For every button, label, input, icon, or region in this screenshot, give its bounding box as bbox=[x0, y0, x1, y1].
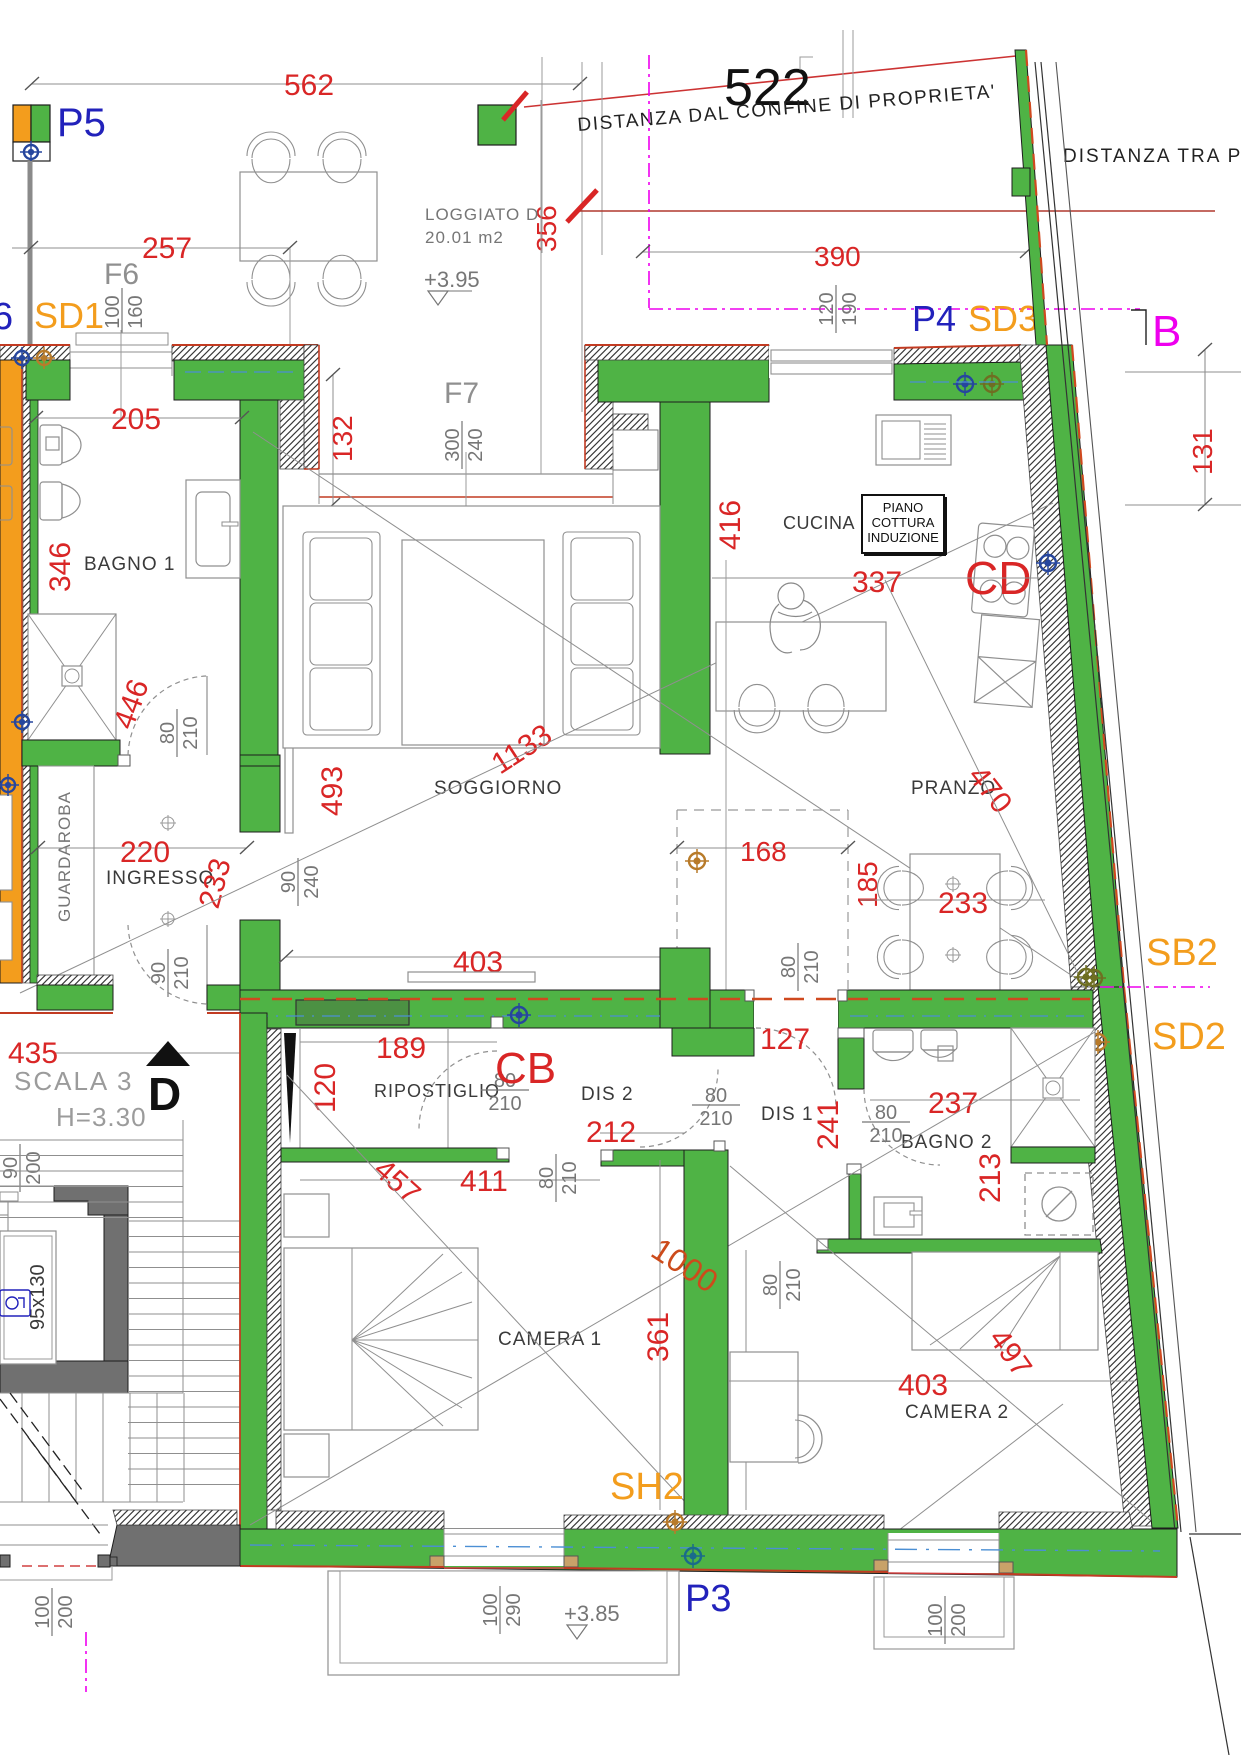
svg-text:361: 361 bbox=[642, 1312, 675, 1362]
svg-text:+3.95: +3.95 bbox=[424, 267, 480, 292]
svg-text:GUARDAROBA: GUARDAROBA bbox=[55, 791, 74, 922]
svg-text:DIS 2: DIS 2 bbox=[581, 1084, 634, 1105]
svg-text:257: 257 bbox=[142, 232, 192, 265]
svg-text:80: 80 bbox=[705, 1085, 727, 1107]
svg-text:200: 200 bbox=[948, 1603, 970, 1636]
svg-text:120: 120 bbox=[309, 1063, 342, 1113]
svg-text:562: 562 bbox=[284, 69, 334, 102]
svg-text:213: 213 bbox=[974, 1153, 1007, 1203]
svg-text:B: B bbox=[1152, 307, 1181, 356]
svg-text:SCALA 3: SCALA 3 bbox=[14, 1066, 134, 1096]
svg-text:185: 185 bbox=[852, 861, 883, 908]
svg-text:403: 403 bbox=[898, 1369, 948, 1402]
svg-text:BAGNO 2: BAGNO 2 bbox=[901, 1132, 992, 1153]
svg-text:205: 205 bbox=[111, 403, 161, 436]
svg-text:P5: P5 bbox=[57, 101, 106, 145]
svg-text:493: 493 bbox=[316, 766, 349, 816]
svg-text:220: 220 bbox=[120, 836, 170, 869]
svg-text:6: 6 bbox=[0, 296, 13, 338]
svg-text:160: 160 bbox=[125, 295, 147, 328]
svg-text:200: 200 bbox=[23, 1151, 45, 1184]
svg-text:300: 300 bbox=[442, 428, 464, 461]
svg-text:131: 131 bbox=[1187, 428, 1218, 475]
svg-text:SOGGIORNO: SOGGIORNO bbox=[434, 778, 562, 799]
svg-text:DIS 1: DIS 1 bbox=[761, 1104, 814, 1125]
svg-text:337: 337 bbox=[852, 566, 902, 599]
svg-text:100: 100 bbox=[102, 295, 124, 328]
svg-text:210: 210 bbox=[488, 1093, 521, 1115]
svg-text:90: 90 bbox=[278, 871, 300, 893]
svg-text:80: 80 bbox=[760, 1274, 782, 1296]
svg-text:F7: F7 bbox=[444, 377, 479, 410]
svg-text:SD1: SD1 bbox=[34, 295, 104, 336]
svg-text:90: 90 bbox=[0, 1157, 22, 1179]
svg-text:346: 346 bbox=[44, 542, 77, 592]
svg-text:416: 416 bbox=[714, 500, 747, 550]
svg-text:210: 210 bbox=[180, 716, 202, 749]
svg-text:210: 210 bbox=[869, 1125, 902, 1147]
svg-text:241: 241 bbox=[812, 1100, 845, 1150]
svg-text:20.01 m2: 20.01 m2 bbox=[425, 228, 504, 247]
svg-text:240: 240 bbox=[465, 428, 487, 461]
svg-text:CAMERA 1: CAMERA 1 bbox=[498, 1329, 602, 1350]
svg-text:H=3.30: H=3.30 bbox=[56, 1102, 147, 1132]
svg-text:190: 190 bbox=[839, 292, 861, 325]
svg-text:F6: F6 bbox=[104, 258, 139, 291]
svg-text:210: 210 bbox=[699, 1108, 732, 1130]
svg-text:+3.85: +3.85 bbox=[564, 1601, 620, 1626]
svg-text:120: 120 bbox=[816, 292, 838, 325]
svg-text:200: 200 bbox=[55, 1595, 77, 1628]
svg-text:189: 189 bbox=[376, 1032, 426, 1065]
svg-text:290: 290 bbox=[503, 1593, 525, 1626]
svg-text:210: 210 bbox=[171, 956, 193, 989]
svg-text:100: 100 bbox=[32, 1595, 54, 1628]
svg-text:210: 210 bbox=[783, 1268, 805, 1301]
svg-text:233: 233 bbox=[938, 887, 988, 920]
svg-text:210: 210 bbox=[801, 950, 823, 983]
svg-text:CB: CB bbox=[495, 1044, 556, 1093]
svg-text:80: 80 bbox=[157, 722, 179, 744]
svg-text:P3: P3 bbox=[685, 1578, 731, 1620]
svg-text:80: 80 bbox=[536, 1167, 558, 1189]
svg-text:CUCINA: CUCINA bbox=[783, 513, 855, 533]
svg-text:SD3: SD3 bbox=[968, 298, 1038, 339]
svg-text:SH2: SH2 bbox=[610, 1466, 684, 1508]
svg-text:240: 240 bbox=[301, 865, 323, 898]
svg-text:PIANO: PIANO bbox=[883, 500, 923, 515]
svg-text:BAGNO 1: BAGNO 1 bbox=[84, 554, 175, 575]
svg-text:INDUZIONE: INDUZIONE bbox=[867, 530, 939, 545]
svg-text:D: D bbox=[148, 1068, 181, 1120]
svg-text:P4: P4 bbox=[912, 298, 956, 339]
svg-text:RIPOSTIGLIO: RIPOSTIGLIO bbox=[374, 1081, 500, 1101]
svg-text:100: 100 bbox=[480, 1593, 502, 1626]
svg-text:80: 80 bbox=[875, 1102, 897, 1124]
svg-text:90: 90 bbox=[148, 962, 170, 984]
svg-text:CAMERA 2: CAMERA 2 bbox=[905, 1402, 1009, 1423]
svg-text:168: 168 bbox=[740, 836, 787, 867]
svg-text:COTTURA: COTTURA bbox=[872, 515, 935, 530]
svg-text:80: 80 bbox=[778, 956, 800, 978]
svg-text:100: 100 bbox=[925, 1603, 947, 1636]
svg-text:127: 127 bbox=[760, 1023, 810, 1056]
svg-text:SB2: SB2 bbox=[1146, 932, 1218, 974]
svg-text:SD2: SD2 bbox=[1152, 1016, 1226, 1058]
svg-text:210: 210 bbox=[559, 1161, 581, 1194]
svg-text:LOGGIATO D: LOGGIATO D bbox=[425, 205, 539, 224]
svg-text:212: 212 bbox=[586, 1116, 636, 1149]
svg-text:411: 411 bbox=[460, 1165, 508, 1198]
svg-text:132: 132 bbox=[327, 415, 358, 462]
svg-text:390: 390 bbox=[814, 241, 861, 272]
svg-text:DISTANZA TRA P: DISTANZA TRA P bbox=[1063, 146, 1241, 167]
